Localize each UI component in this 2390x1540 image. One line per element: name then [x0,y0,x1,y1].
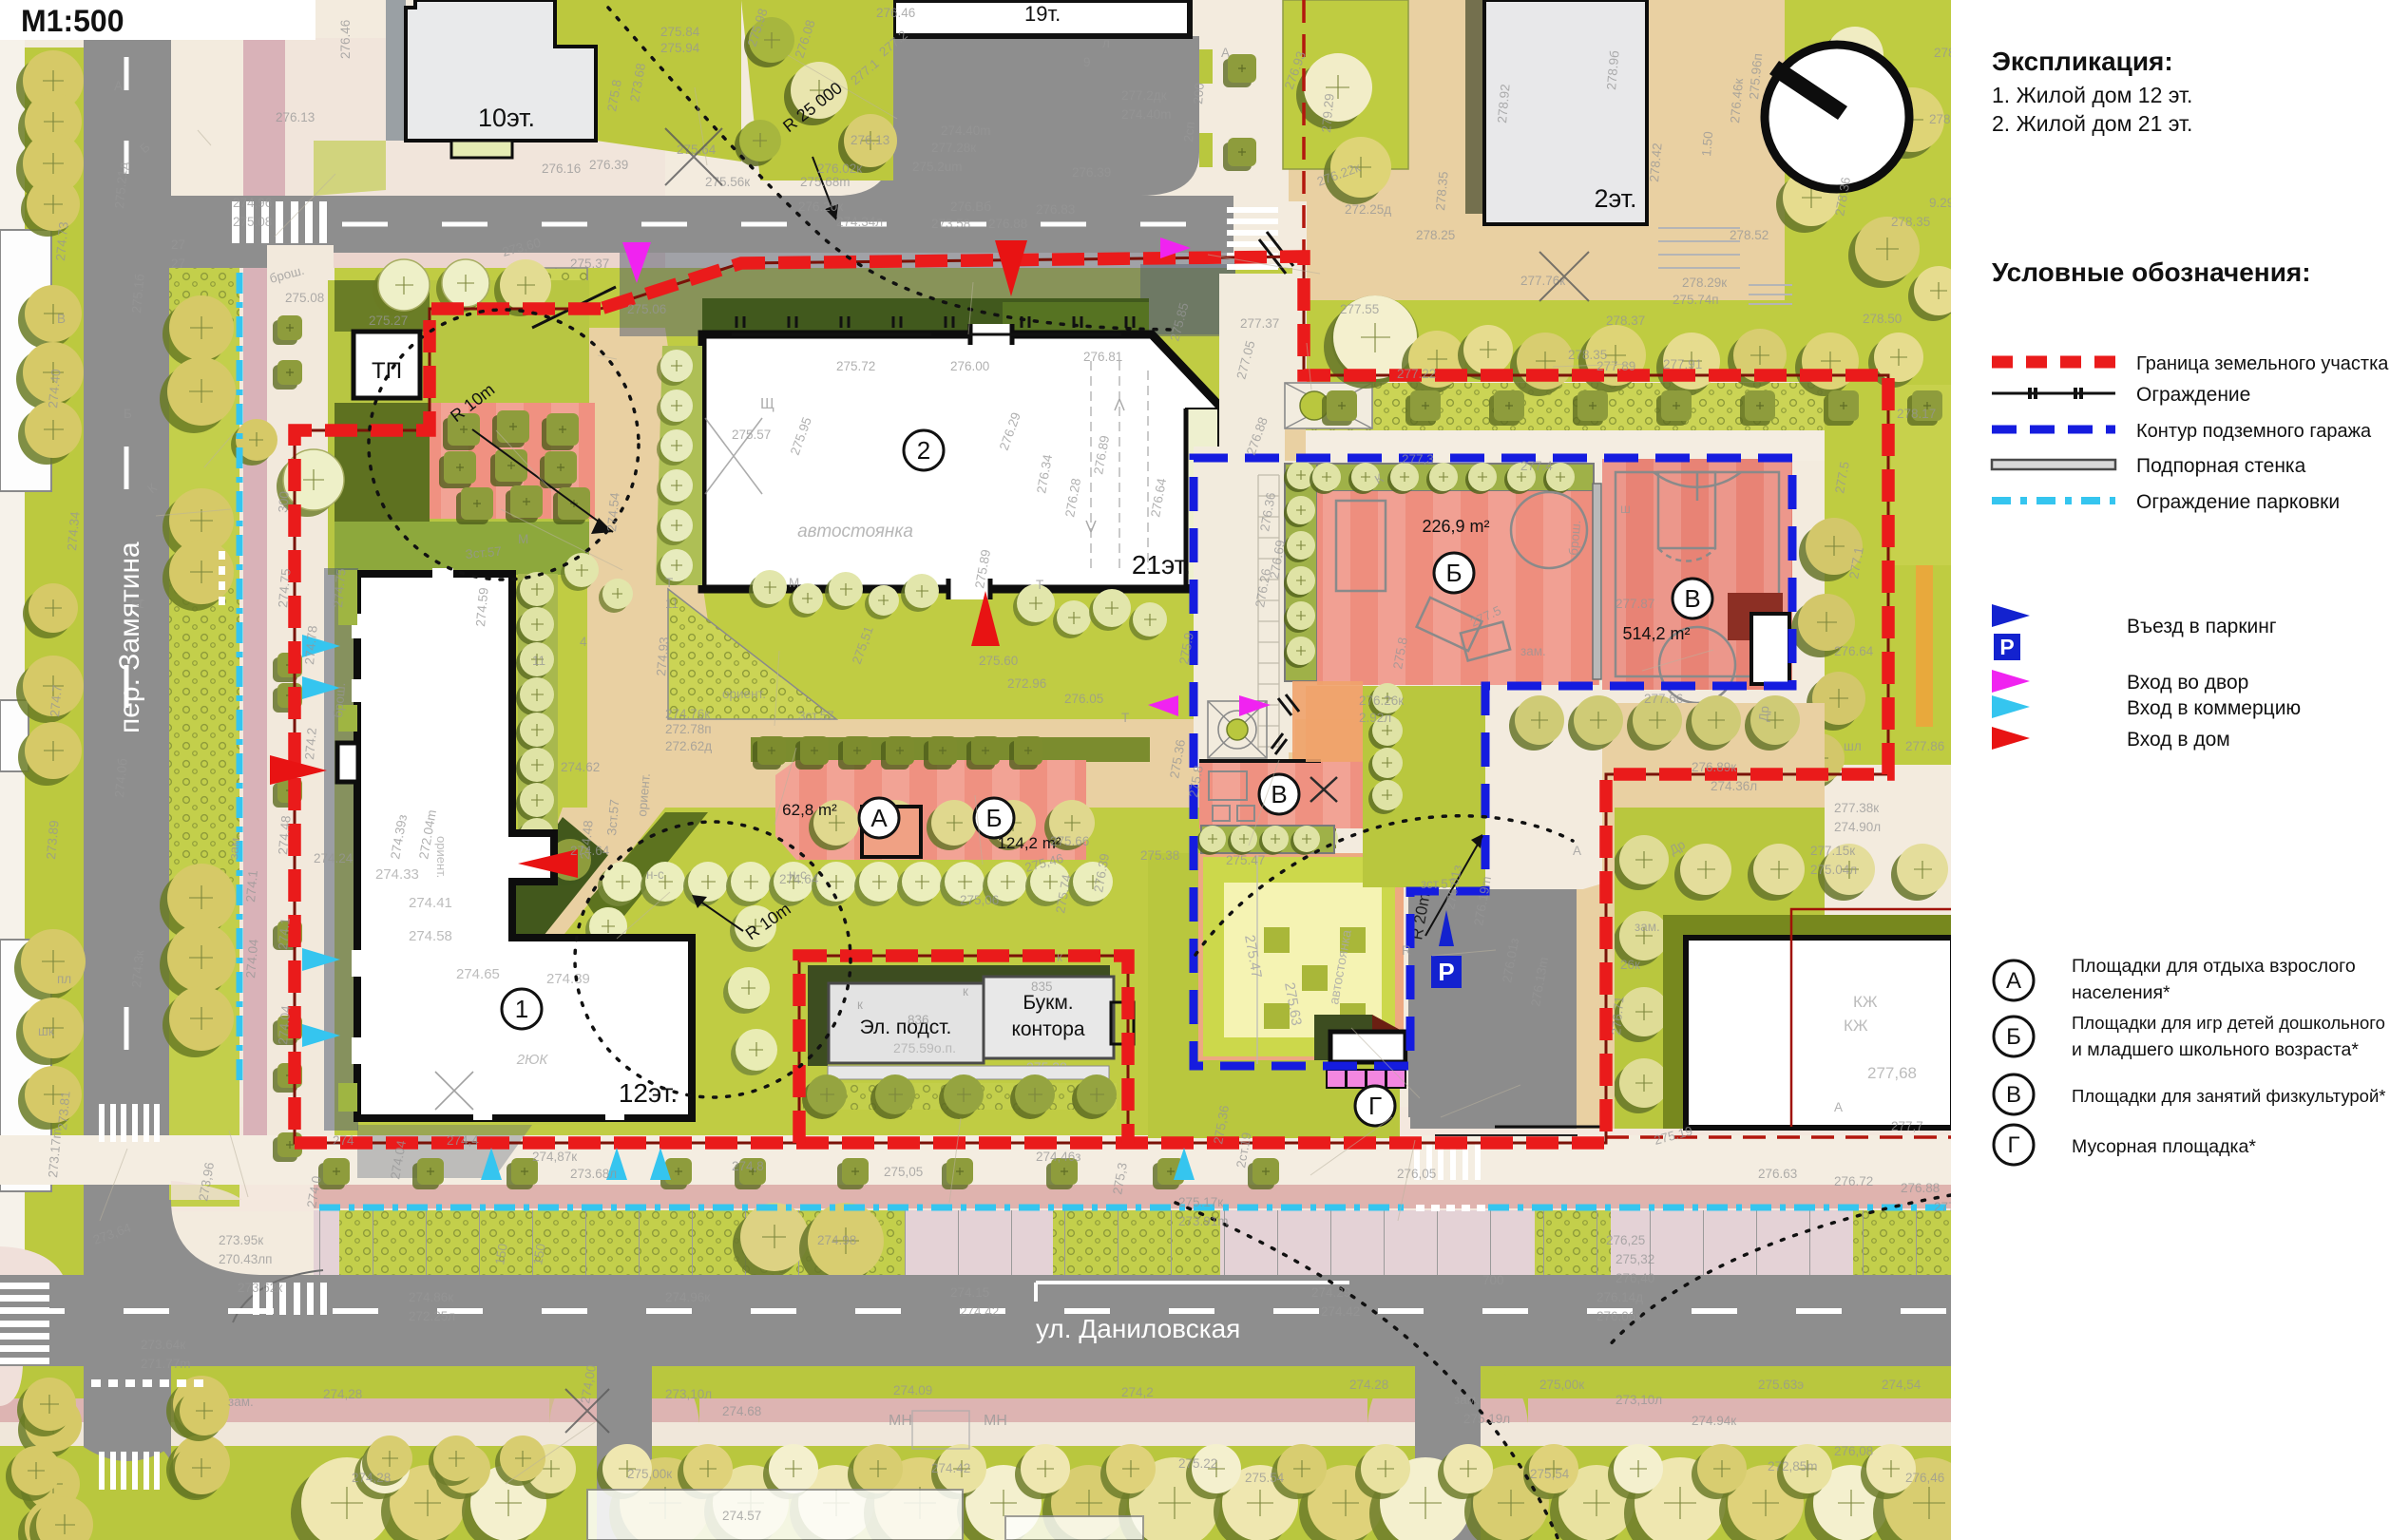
svg-text:Т: Т [1036,578,1043,592]
svg-text:272.96: 272.96 [1007,676,1046,691]
svg-text:и младшего школьного возраста*: и младшего школьного возраста* [2072,1039,2359,1060]
svg-text:277.87: 277.87 [1616,597,1654,611]
svg-text:274,8: 274,8 [732,1159,764,1173]
svg-text:274.40m: 274.40m [941,124,991,138]
svg-text:276.05: 276.05 [1064,692,1103,706]
svg-text:274.76к: 274.76к [665,707,710,721]
svg-text:275.68m: 275.68m [800,175,851,189]
svg-text:277.38к: 277.38к [1834,801,1879,815]
svg-text:P: P [1999,635,2014,659]
svg-text:275.63э: 275.63э [1758,1378,1804,1392]
svg-text:В: В [1684,584,1700,613]
svg-text:Мусорная площадка*: Мусорная площадка* [2072,1136,2256,1157]
svg-text:274: 274 [333,1133,354,1148]
svg-text:Букм.: Букм. [1023,992,1073,1014]
svg-text:Въезд в паркинг: Въезд в паркинг [2127,616,2277,637]
svg-text:274.98: 274.98 [817,1233,856,1247]
svg-text:276,08: 276,08 [1834,1444,1873,1458]
svg-text:278.37: 278.37 [1606,314,1645,328]
svg-text:276.46: 276.46 [338,20,353,59]
svg-text:276.88: 276.88 [988,217,1027,231]
svg-text:275,05: 275,05 [884,1165,923,1179]
svg-text:274.33: 274.33 [375,866,419,883]
svg-text:274.28: 274.28 [1349,1378,1388,1392]
svg-text:к: к [963,984,968,998]
svg-text:1: 1 [515,995,528,1023]
svg-text:273.95к: 273.95к [219,1233,263,1247]
svg-text:А: А [1573,844,1581,858]
svg-text:М: М [518,532,528,546]
svg-text:274.7: 274.7 [48,684,65,717]
svg-text:4: 4 [580,635,587,649]
svg-text:277.91: 277.91 [1663,357,1702,371]
svg-text:275.84: 275.84 [660,25,700,39]
svg-text:к: к [1057,950,1062,964]
svg-text:276.06к: 276.06к [1597,1309,1641,1323]
svg-text:275,00к: 275,00к [627,1467,672,1481]
svg-text:277,7: 277,7 [1891,1119,1923,1133]
svg-text:273.91m: 273.91m [1178,1214,1229,1228]
svg-text:274.29: 274.29 [1311,1285,1350,1300]
svg-text:275.17к: 275.17к [1178,1195,1223,1209]
svg-text:к: к [857,998,863,1012]
svg-text:272.62д: 272.62д [665,739,712,753]
svg-text:Д: Д [129,599,144,608]
svg-text:274.86к: 274.86к [409,1290,453,1304]
svg-text:278.25: 278.25 [1416,228,1455,242]
svg-text:274.94к: 274.94к [1692,1414,1736,1428]
svg-text:275.66: 275.66 [1050,834,1089,848]
svg-text:н-с: н-с [789,867,807,882]
svg-text:271.77m: 271.77m [141,1357,191,1371]
svg-text:277.2дк: 277.2дк [1121,88,1167,103]
svg-text:273.62к: 273.62к [238,1281,282,1295]
svg-text:2: 2 [917,436,930,465]
svg-text:пер. Замятина: пер. Замятина [114,542,145,733]
svg-text:226,9 m²: 226,9 m² [1422,517,1489,536]
svg-text:272,85m: 272,85m [1768,1459,1818,1473]
svg-text:27: 27 [171,238,185,252]
svg-text:274.15: 274.15 [950,1285,989,1300]
svg-text:ориент.: ориент. [722,687,766,701]
svg-text:278.50: 278.50 [1863,312,1902,326]
svg-text:P: P [1438,958,1454,986]
svg-text:Эл. подст.: Эл. подст. [860,1017,952,1038]
svg-text:10эт.: 10эт. [478,104,535,132]
svg-text:276.13: 276.13 [851,133,889,147]
svg-text:277,3: 277,3 [1402,452,1434,466]
svg-text:Условные обозначения:: Условные обозначения: [1992,257,2311,287]
svg-text:А: А [2006,968,2021,994]
svg-text:276.63: 276.63 [1758,1167,1797,1181]
svg-text:Вход в дом: Вход в дом [2127,729,2230,751]
svg-text:274.2: 274.2 [302,727,319,760]
svg-text:275.06: 275.06 [627,302,666,316]
svg-text:М: М [789,576,799,590]
svg-text:277.28к: 277.28к [931,141,976,155]
svg-text:М1:500: М1:500 [21,4,124,38]
svg-text:275.22: 275.22 [1178,1456,1217,1471]
svg-text:275.04л: 275.04л [1810,863,1857,877]
svg-text:27: 27 [171,257,185,271]
svg-text:270.43лп: 270.43лп [219,1252,272,1266]
svg-text:274.40m: 274.40m [1121,107,1172,122]
svg-text:274,28: 274,28 [352,1471,391,1485]
svg-text:шк: шк [38,1024,54,1038]
svg-text:276.39: 276.39 [589,158,628,172]
svg-text:277.37: 277.37 [1240,316,1279,331]
svg-text:ориент.: ориент. [434,836,449,878]
svg-text:272.78п: 272.78п [665,722,712,736]
svg-text:3ст.57: 3ст.57 [798,709,834,723]
svg-text:А: А [870,804,888,832]
svg-text:277.89: 277.89 [1597,359,1635,373]
svg-text:МН: МН [984,1413,1007,1429]
svg-text:277.55: 277.55 [1340,302,1379,316]
svg-text:зам.: зам. [1454,1393,1480,1407]
svg-text:КЖ: КЖ [1844,1017,1868,1035]
svg-text:278.17: 278.17 [1897,407,1936,421]
svg-text:276.89к: 276.89к [1692,760,1736,774]
svg-text:Площадки для занятий физкульту: Площадки для занятий физкультурой* [2072,1086,2386,1106]
svg-text:зам.: зам. [1635,920,1660,934]
svg-text:273.58: 273.58 [931,217,970,231]
svg-text:Г: Г [1368,1092,1382,1120]
svg-text:273.68л: 273.68л [570,1167,617,1181]
svg-text:835: 835 [1031,979,1053,994]
svg-text:274.41: 274.41 [409,895,452,911]
svg-text:В: В [57,312,66,326]
svg-text:275.60: 275.60 [979,654,1018,668]
svg-text:275,00к: 275,00к [1539,1378,1584,1392]
svg-text:Граница земельного участка: Граница земельного участка [2136,353,2389,374]
svg-text:273,10л: 273,10л [665,1387,712,1401]
svg-text:276.Вб: 276.Вб [950,200,991,214]
svg-text:274.96к: 274.96к [665,1290,710,1304]
svg-text:274.58: 274.58 [409,928,452,944]
svg-text:276.14д: 276.14д [1597,1290,1643,1304]
svg-text:КЖ: КЖ [1853,993,1878,1011]
svg-text:А: А [114,79,123,93]
svg-text:А: А [1221,46,1230,60]
svg-text:276,25: 276,25 [1606,1233,1645,1247]
svg-text:2. Жилой дом 21 эт.: 2. Жилой дом 21 эт. [1992,111,2192,136]
svg-text:277.86: 277.86 [1905,739,1944,753]
svg-text:R: R [1402,943,1411,958]
svg-text:274.34л: 274.34л [836,215,883,229]
svg-text:2.92л: 2.92л [1359,711,1391,725]
svg-text:272.25л: 272.25л [409,1309,455,1323]
svg-text:273.64к: 273.64к [141,1338,185,1352]
svg-text:274.68: 274.68 [722,1404,761,1418]
svg-text:Дp: Дp [1756,705,1771,722]
svg-text:Площадки для игр детей дошколь: Площадки для игр детей дошкольного [2072,1013,2385,1033]
svg-text:275.59о.п.: 275.59о.п. [893,1040,956,1055]
svg-text:В: В [2006,1082,2021,1108]
svg-text:274,96: 274,96 [233,196,272,210]
svg-text:274.24: 274.24 [314,851,354,865]
svg-text:274,4: 274,4 [447,1133,479,1148]
svg-text:276.16: 276.16 [542,162,581,176]
svg-text:19т.: 19т. [1024,2,1061,26]
svg-text:11: 11 [532,654,545,668]
svg-text:Экспликация:: Экспликация: [1992,47,2173,76]
svg-text:275.37: 275.37 [570,257,609,271]
svg-text:ул. Даниловская: ул. Даниловская [1036,1314,1240,1343]
svg-text:275.2um: 275.2um [912,160,963,174]
svg-text:274.09: 274.09 [893,1383,932,1397]
svg-text:62,8 m²: 62,8 m² [782,801,837,819]
svg-text:Ограждение парковки: Ограждение парковки [2136,491,2340,513]
svg-text:Щ: Щ [760,396,774,412]
svg-text:МН: МН [889,1413,912,1429]
svg-text:274.57: 274.57 [722,1509,761,1523]
svg-text:836: 836 [908,1013,929,1027]
svg-text:276.88: 276.88 [1901,1181,1940,1195]
svg-text:зам.: зам. [226,833,242,860]
svg-text:Подпорная стенка: Подпорная стенка [2136,455,2306,477]
svg-text:275.54: 275.54 [1245,1471,1285,1485]
svg-text:274.1: 274.1 [243,869,260,903]
svg-text:зам.: зам. [1520,644,1546,658]
svg-text:А: А [1834,1100,1843,1114]
svg-text:1. Жилой дом 12 эт.: 1. Жилой дом 12 эт. [1992,83,2192,107]
svg-text:276.72: 276.72 [1834,1174,1873,1188]
svg-text:шл: шл [1844,739,1862,753]
svg-text:274,28: 274,28 [323,1387,362,1401]
svg-text:Вход во двор: Вход во двор [2127,672,2248,694]
svg-text:277.22: 277.22 [1397,367,1436,381]
svg-text:274.36л: 274.36л [1711,779,1757,793]
svg-text:276,40: 276,40 [1616,1271,1654,1285]
svg-text:276.02к: 276.02к [817,162,862,176]
svg-text:272.25д: 272.25д [1345,202,1391,217]
svg-text:276.26к: 276.26к [1359,694,1404,708]
svg-text:1.50: 1.50 [1699,131,1715,157]
svg-text:275.38: 275.38 [1140,848,1179,863]
svg-text:контора: контора [1011,1018,1084,1040]
svg-text:11: 11 [665,597,679,611]
svg-text:Б: Б [2006,1024,2021,1050]
svg-text:277.66: 277.66 [1644,692,1683,706]
svg-text:2сп: 2сп [1181,121,1197,143]
svg-text:Вход в коммерцию: Вход в коммерцию [2127,697,2301,719]
svg-text:275.27: 275.27 [369,314,408,328]
svg-text:275.56к: 275.56к [705,175,750,189]
svg-text:277,68: 277,68 [1867,1064,1917,1082]
svg-text:Т: Т [1121,711,1129,725]
svg-text:274,2: 274,2 [1121,1385,1154,1399]
svg-text:275.19л: 275.19л [1463,1412,1510,1426]
svg-text:274.65: 274.65 [456,966,500,982]
svg-text:26к: 26к [1620,958,1640,972]
svg-text:278.52: 278.52 [1730,228,1769,242]
svg-text:Площадки для отдыха взрослого: Площадки для отдыха взрослого [2072,956,2356,977]
svg-text:2эт.: 2эт. [1594,184,1636,213]
svg-text:276.20к: 276.20к [798,200,843,214]
svg-text:274.39: 274.39 [546,971,590,987]
svg-text:276.83: 276.83 [1036,202,1075,217]
svg-text:пл: пл [57,972,71,986]
svg-text:274,54: 274,54 [1882,1378,1922,1392]
svg-text:275,32: 275,32 [1616,1252,1654,1266]
svg-text:275,06: 275,06 [960,893,999,907]
svg-text:275.72: 275.72 [836,359,875,373]
svg-text:зам.: зам. [228,1395,254,1409]
svg-text:276.39: 276.39 [1072,165,1111,180]
svg-text:л: л [1102,36,1110,50]
svg-text:21эт.: 21эт. [1132,550,1191,580]
svg-text:275.74п: 275.74п [1673,293,1719,307]
svg-text:Г: Г [2008,1132,2020,1158]
svg-text:275.94: 275.94 [660,41,700,55]
svg-text:274,46з: 274,46з [1036,1150,1080,1164]
svg-text:Контур подземного гаража: Контур подземного гаража [2136,421,2372,442]
svg-text:276.13: 276.13 [276,110,315,124]
svg-text:276.64: 276.64 [1834,644,1874,658]
svg-text:300: 300 [276,491,292,514]
svg-text:В: В [1271,780,1287,808]
svg-text:Б: Б [985,804,1002,832]
svg-text:274,87к: 274,87к [532,1150,577,1164]
svg-text:277.4: 277.4 [1520,459,1553,473]
svg-text:277.15к: 277.15к [1810,844,1855,858]
svg-text:274.42: 274.42 [931,1461,970,1475]
svg-text:Б: Б [1445,559,1462,587]
svg-text:9: 9 [1083,55,1091,69]
svg-text:275.08: 275.08 [285,291,324,305]
svg-text:278.29к: 278.29к [1682,276,1727,290]
svg-text:275.47: 275.47 [1226,853,1265,867]
svg-text:276.46: 276.46 [876,6,915,20]
svg-text:Ограждение: Ограждение [2136,384,2250,406]
svg-text:автостоянка: автостоянка [797,522,913,542]
svg-text:275,54: 275,54 [1530,1467,1570,1481]
svg-text:514,2 m²: 514,2 m² [1622,624,1690,643]
svg-text:276.81: 276.81 [1083,350,1122,364]
svg-text:276.00: 276.00 [950,359,989,373]
svg-text:274.90л: 274.90л [1834,820,1881,834]
svg-text:274.42: 274.42 [960,1304,999,1319]
svg-text:274.1: 274.1 [276,917,293,950]
svg-text:Т: Т [665,576,673,590]
svg-text:275.08: 275.08 [233,215,272,229]
svg-text:2ЮК: 2ЮК [516,1052,549,1068]
svg-text:н-с: н-с [646,867,664,882]
svg-text:273,10л: 273,10л [1616,1393,1662,1407]
svg-text:275.57: 275.57 [732,428,771,442]
svg-text:278.35: 278.35 [1891,215,1930,229]
svg-text:276,05: 276,05 [1397,1167,1436,1181]
svg-text:ш: ш [1620,502,1631,516]
svg-text:274.42: 274.42 [1321,1304,1360,1319]
svg-text:200: 200 [1191,83,1207,105]
svg-text:населения*: населения* [2072,982,2170,1003]
svg-text:700: 700 [1482,1273,1504,1287]
svg-text:274.62: 274.62 [561,760,600,774]
svg-text:Б: Б [124,407,132,421]
svg-text:276,46: 276,46 [1905,1471,1944,1485]
